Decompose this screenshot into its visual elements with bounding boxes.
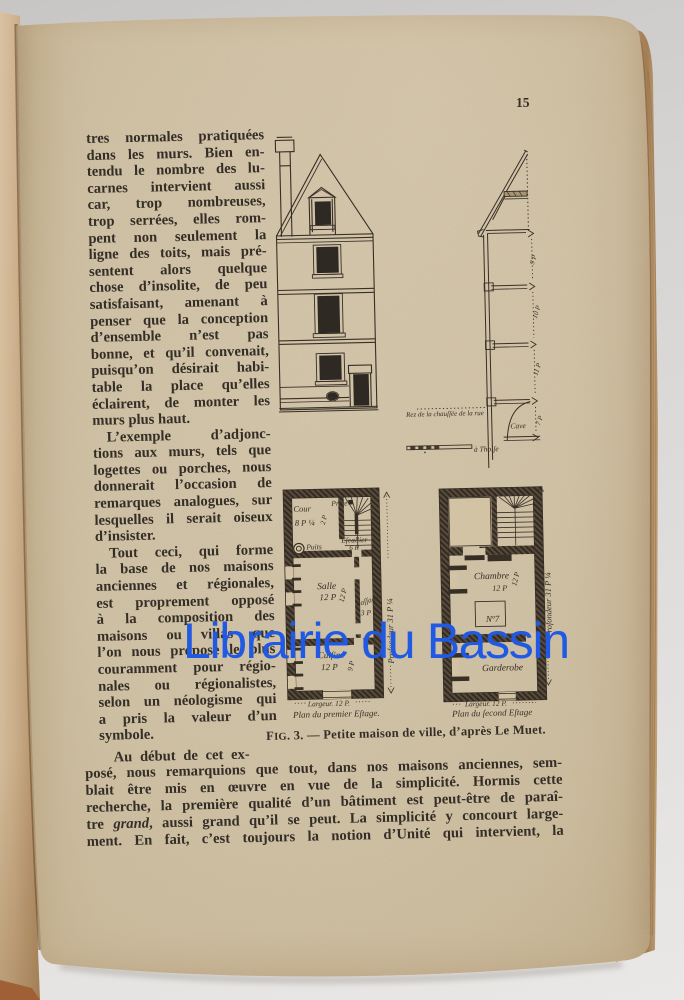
svg-text:Plan du premier Eſtage.: Plan du premier Eſtage. [292, 708, 380, 720]
svg-text:Puits: Puits [305, 542, 322, 551]
svg-text:2 P: 2 P [319, 514, 329, 526]
svg-text:11 P: 11 P [532, 361, 544, 376]
svg-text:Privé: Privé [330, 499, 348, 508]
svg-text:8 P ¼: 8 P ¼ [295, 517, 316, 527]
svg-text:Cour: Cour [293, 503, 311, 513]
svg-text:6 P: 6 P [349, 544, 359, 552]
svg-text:Rez de la chauſſée de la rue: Rez de la chauſſée de la rue [405, 409, 484, 419]
svg-text:Salle: Salle [317, 582, 336, 592]
svg-text:Plan du ſecond Eſtage: Plan du ſecond Eſtage [451, 707, 532, 719]
svg-text:10 P: 10 P [531, 304, 543, 320]
svg-text:7 P: 7 P [534, 414, 545, 426]
svg-text:12 P: 12 P [509, 571, 521, 587]
svg-text:Largeur. 12 P.: Largeur. 12 P. [307, 699, 350, 709]
svg-text:à Thoiſe: à Thoiſe [474, 444, 500, 454]
svg-text:Cave: Cave [510, 421, 526, 430]
svg-text:9 P: 9 P [528, 253, 539, 265]
svg-text:12 P: 12 P [319, 592, 336, 602]
svg-text:12 P: 12 P [492, 583, 507, 592]
svg-text:12 P: 12 P [337, 587, 349, 603]
svg-text:Chambre: Chambre [474, 571, 509, 582]
